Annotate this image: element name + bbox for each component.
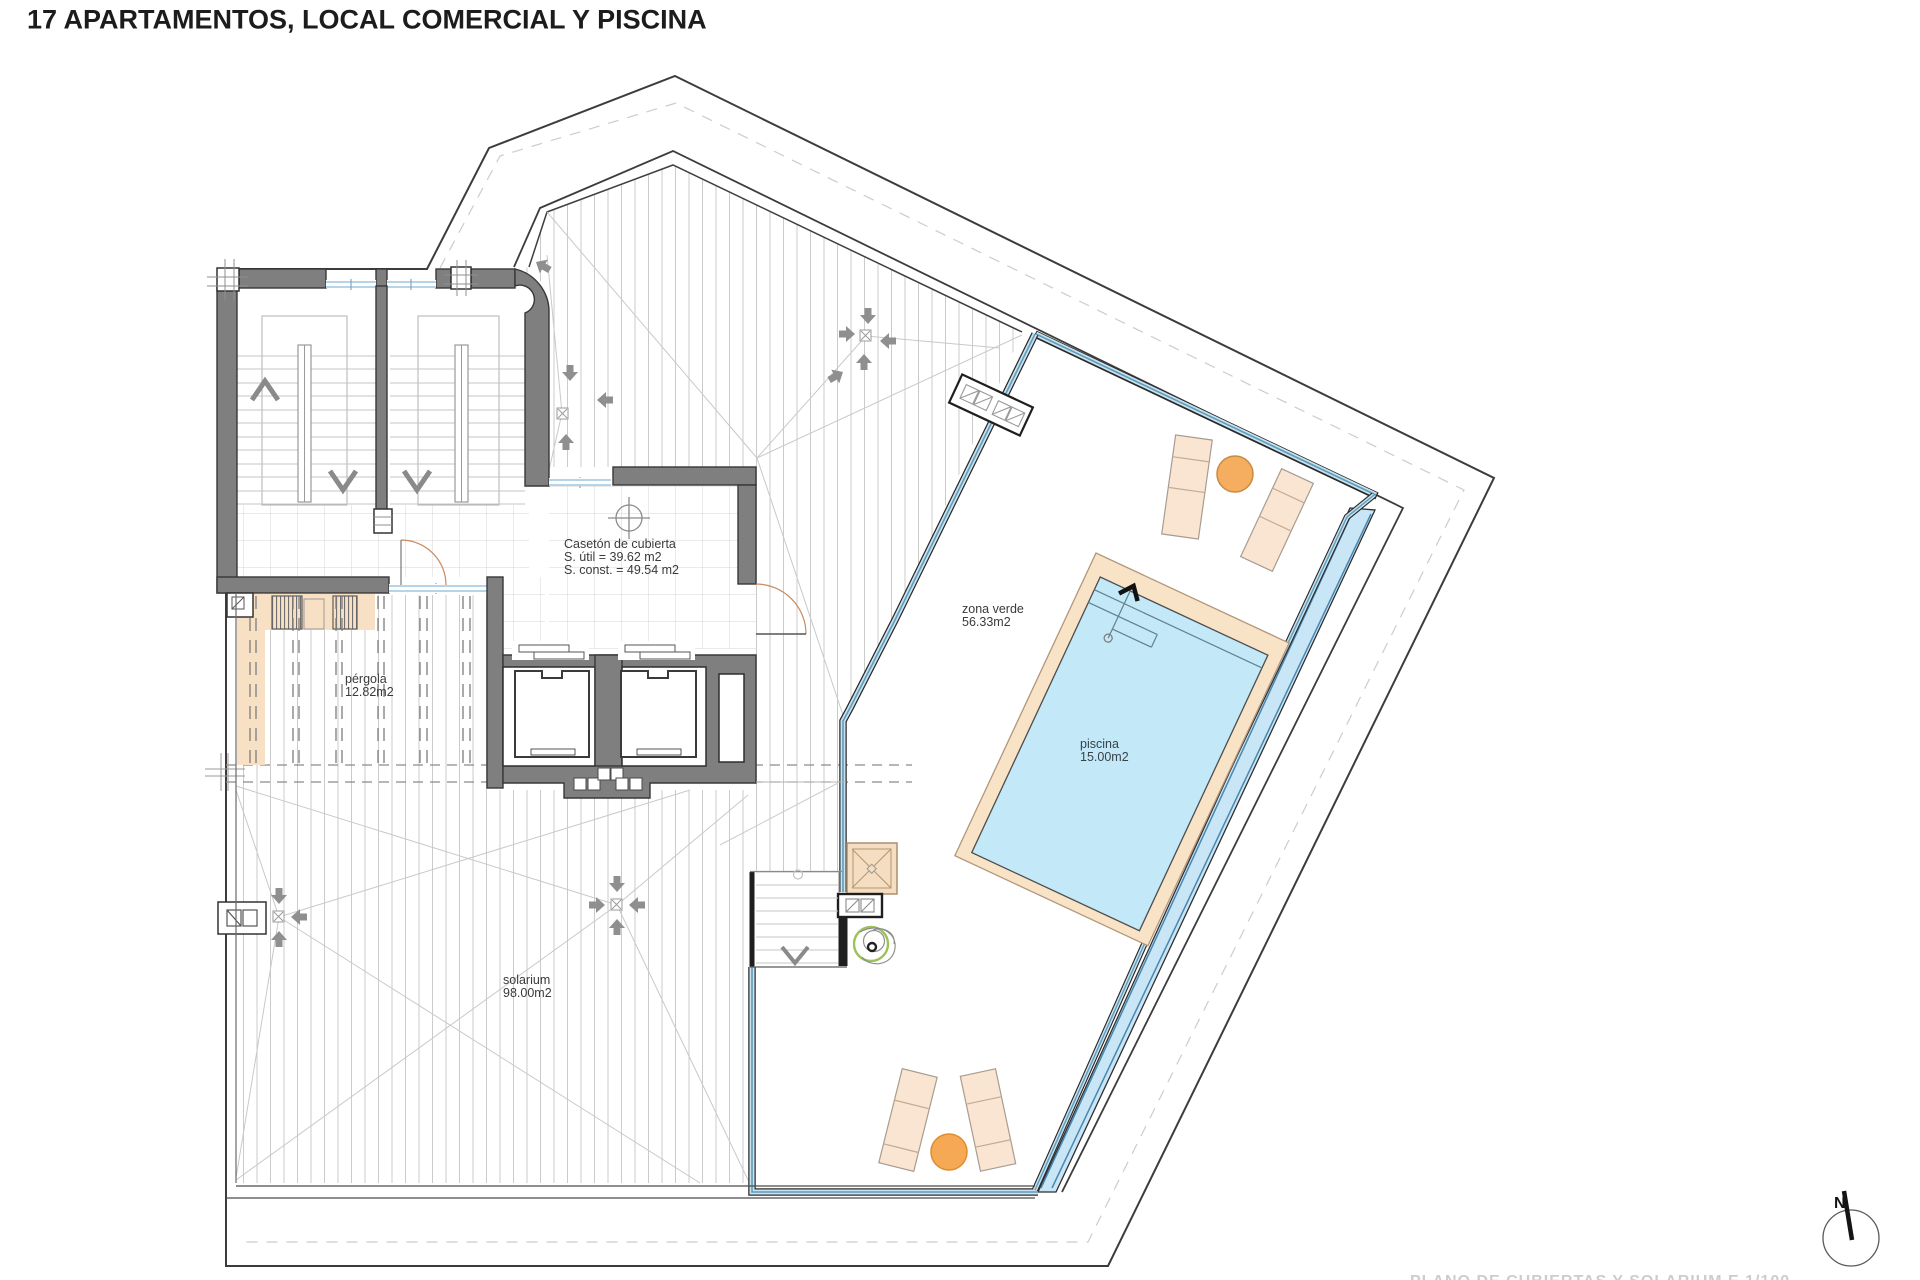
svg-text:solarium: solarium [503,973,550,987]
svg-text:Casetón de cubierta: Casetón de cubierta [564,537,676,551]
svg-text:98.00m2: 98.00m2 [503,986,552,1000]
svg-text:pérgola: pérgola [345,672,387,686]
svg-text:15.00m2: 15.00m2 [1080,750,1129,764]
svg-text:S. útil = 39.62 m2: S. útil = 39.62 m2 [564,550,662,564]
svg-text:PLANO DE CUBIERTAS Y SOLARIUM: PLANO DE CUBIERTAS Y SOLARIUM E 1/100 [1410,1273,1790,1280]
svg-text:12.82m2: 12.82m2 [345,685,394,699]
svg-text:N: N [1834,1195,1846,1212]
svg-text:zona verde: zona verde [962,602,1024,616]
svg-text:17 APARTAMENTOS, LOCAL COMERCI: 17 APARTAMENTOS, LOCAL COMERCIAL Y PISCI… [27,5,707,35]
svg-text:piscina: piscina [1080,737,1119,751]
svg-text:S. const. = 49.54 m2: S. const. = 49.54 m2 [564,563,679,577]
svg-text:56.33m2: 56.33m2 [962,615,1011,629]
